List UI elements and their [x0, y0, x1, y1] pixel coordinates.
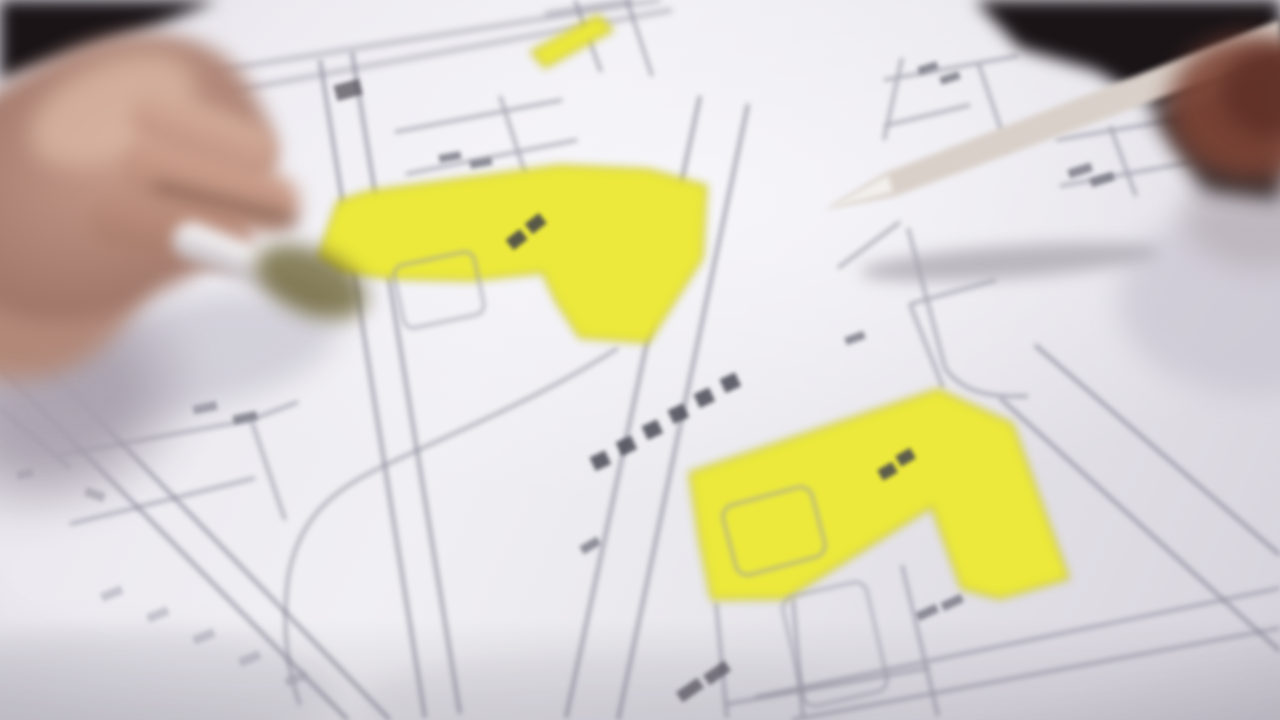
top-strip-highlight: [532, 16, 612, 67]
pen-cast-shadow: [859, 236, 1161, 289]
photo-scene: [0, 0, 1280, 720]
lower-parcel-highlight: [690, 390, 1068, 599]
annotation-mark: [844, 331, 866, 345]
curved-boundary-line: [285, 348, 618, 705]
glyph-mark: [615, 435, 637, 456]
pen-tip: [826, 175, 893, 209]
annotation-mark: [915, 604, 939, 621]
glyph-mark: [719, 372, 741, 393]
glyph-mark: [146, 606, 170, 623]
annotation-mark: [940, 594, 964, 611]
road-name-glyphs: [589, 372, 741, 471]
annotation-mark: [579, 537, 601, 555]
parcel-grid-top-center: [395, 0, 652, 176]
glyph-mark: [100, 585, 124, 602]
paper-shadow-bottom-left: [0, 630, 340, 720]
glyph-mark: [693, 387, 715, 408]
annotation-mark: [1067, 162, 1093, 178]
glyph-mark: [641, 419, 663, 440]
glyph-mark: [589, 450, 611, 471]
upper-parcel-highlight: [318, 166, 706, 342]
annotation-mark: [939, 71, 960, 85]
annotation-mark: [1089, 171, 1115, 187]
annotation-mark: [438, 151, 461, 163]
paper-edge-lines: [195, 0, 672, 96]
